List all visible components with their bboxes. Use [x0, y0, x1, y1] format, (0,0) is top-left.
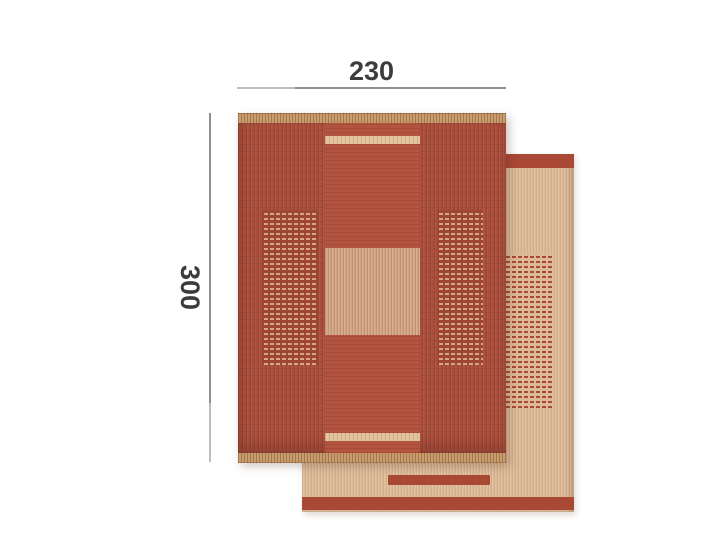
front-rug-accent-stripe-top	[325, 136, 420, 144]
height-dimension-value: 300	[175, 265, 206, 310]
front-rug-bottom-fringe	[238, 453, 506, 463]
front-rug-checkered-panel-left	[262, 210, 318, 365]
height-dimension-line	[209, 113, 211, 462]
width-dimension-line	[237, 87, 506, 89]
front-rug-accent-stripe-bottom	[325, 433, 420, 441]
front-rug-center-square	[325, 248, 420, 335]
height-dimension-label: 300	[168, 113, 212, 462]
product-dimension-image: 230 300	[0, 0, 720, 540]
width-dimension-label: 230	[237, 56, 506, 86]
front-rug-top-fringe	[238, 113, 506, 123]
back-rug-bottom-band	[302, 497, 574, 510]
back-rug-checkered-panel	[504, 253, 552, 408]
back-rug-center-bar	[388, 475, 490, 485]
front-rug-image	[238, 113, 506, 462]
front-rug-checkered-panel-right	[437, 210, 483, 365]
